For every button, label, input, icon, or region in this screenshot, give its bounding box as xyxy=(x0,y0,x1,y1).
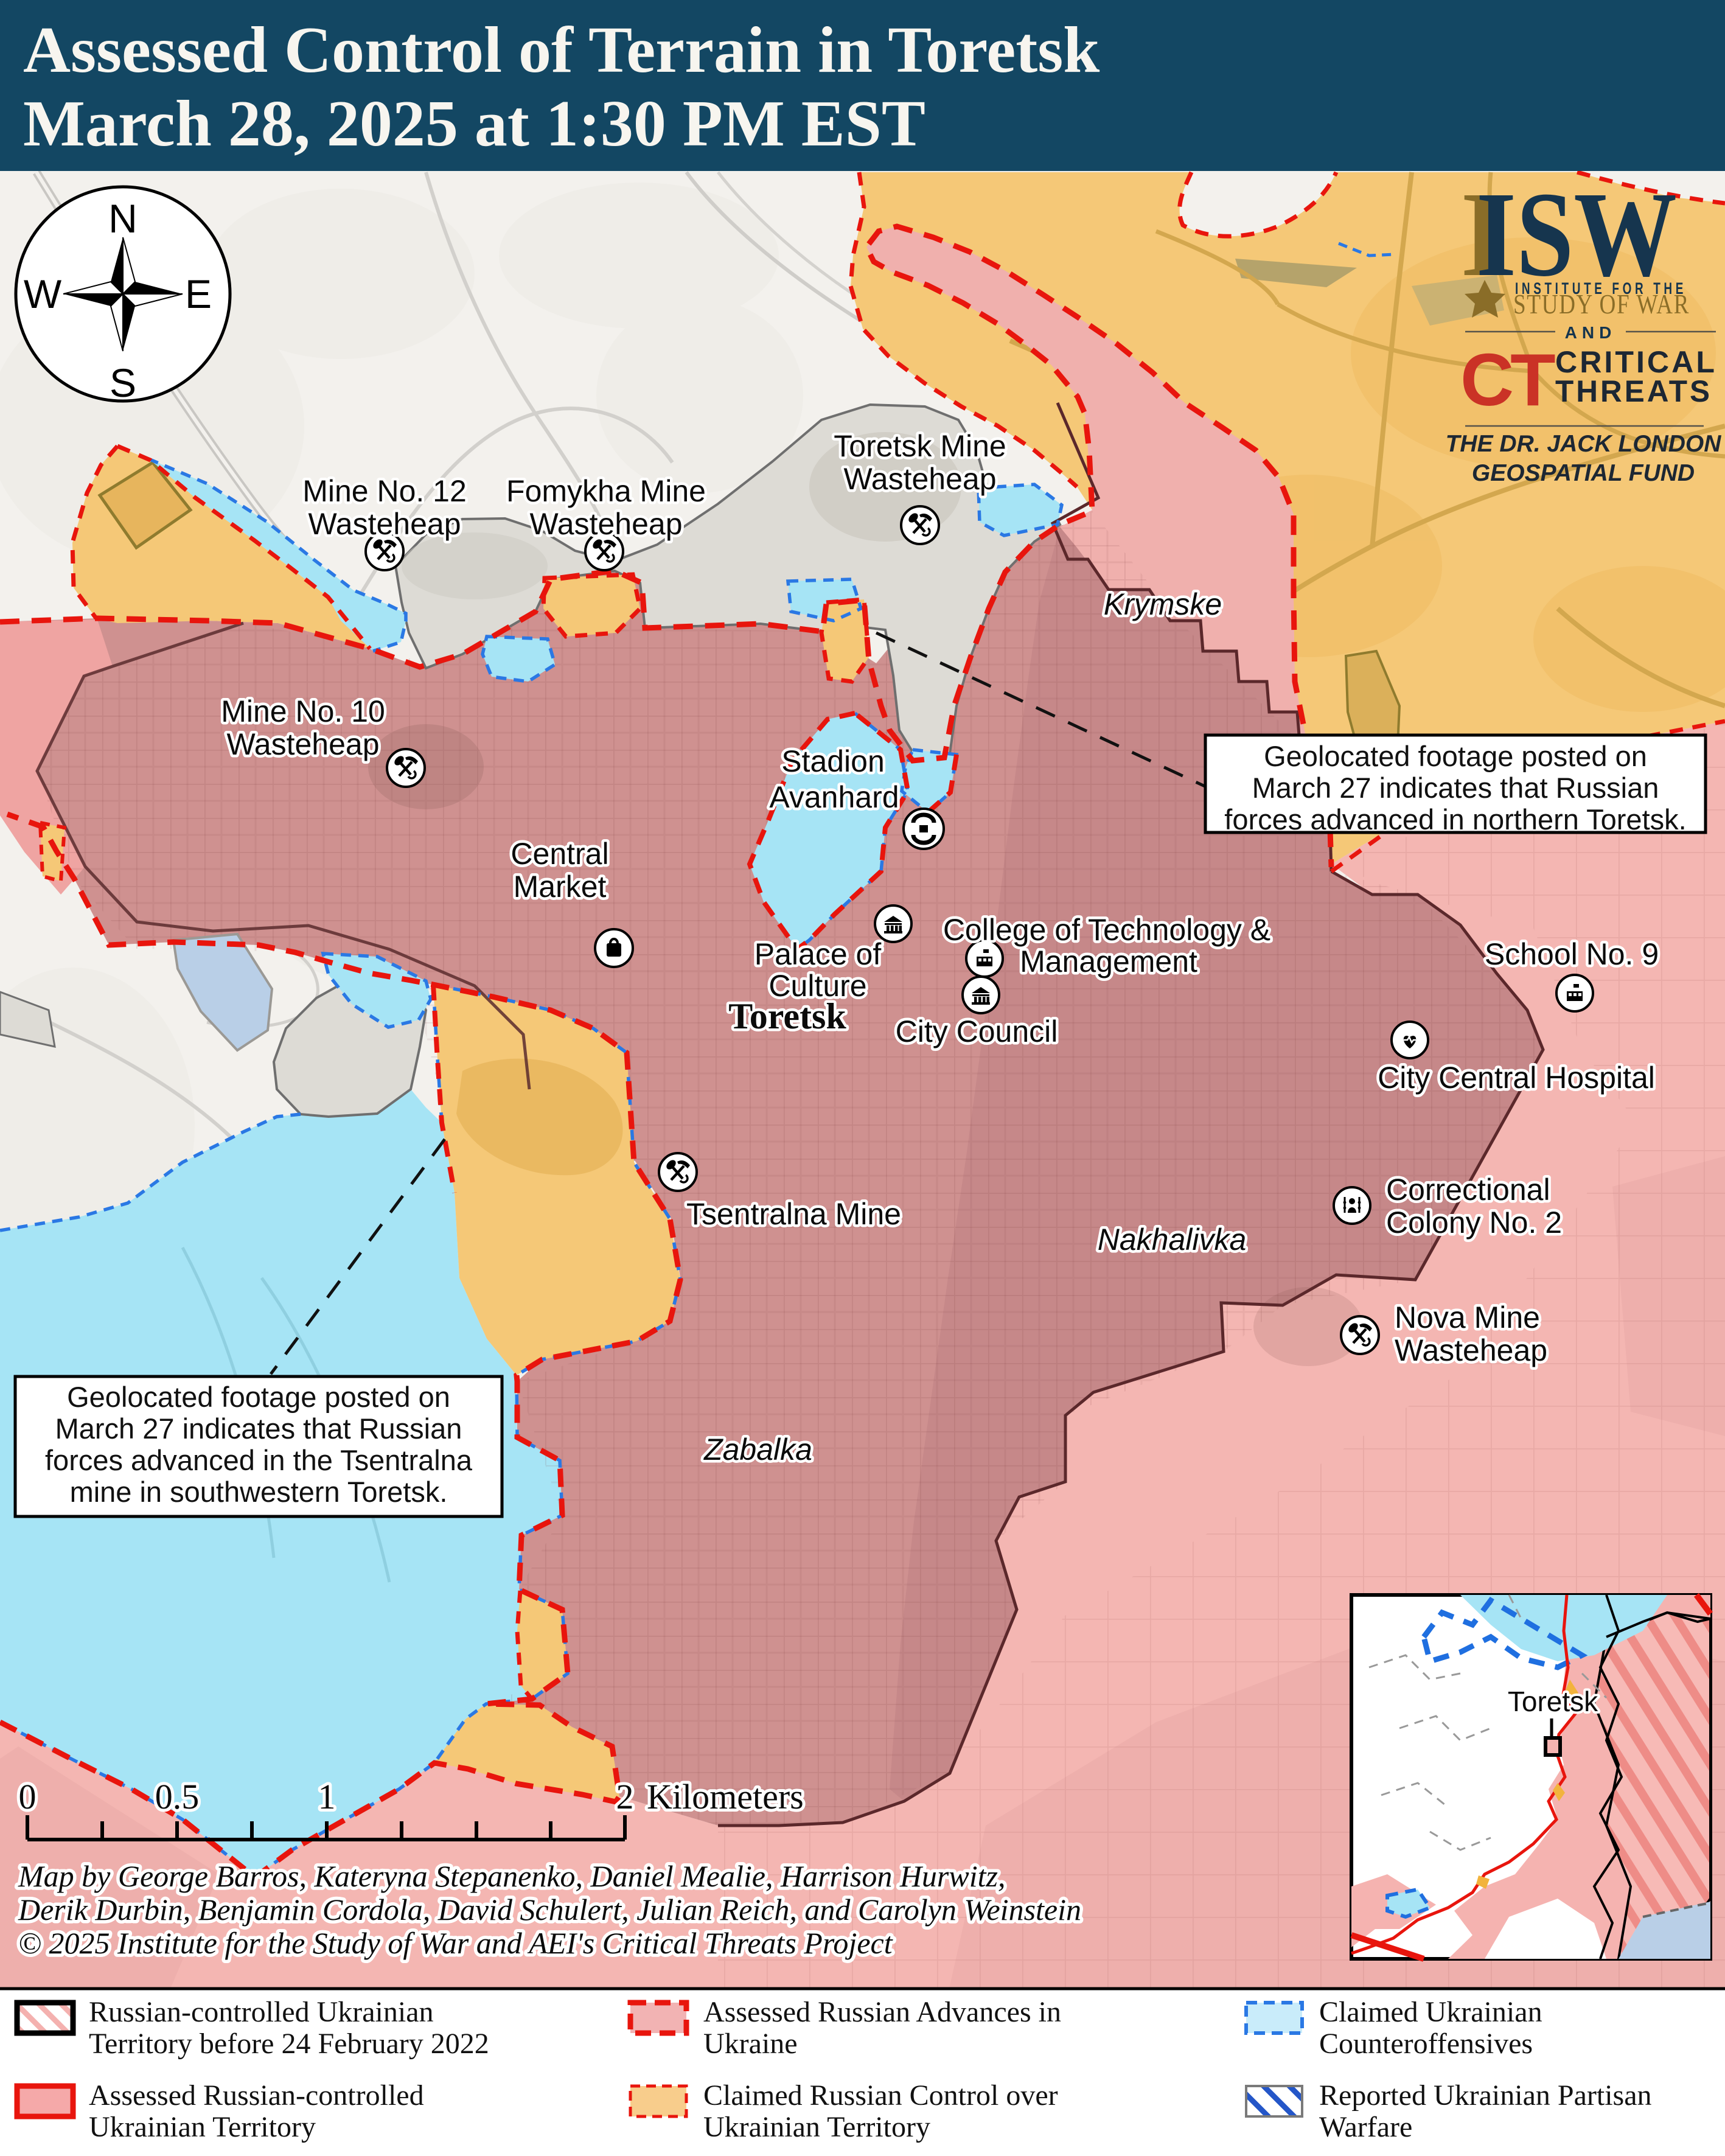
svg-text:© 2025 Institute for the Study: © 2025 Institute for the Study of War an… xyxy=(18,1926,893,1960)
svg-text:Avanhard: Avanhard xyxy=(769,780,899,814)
svg-text:Assessed Control of Terrain in: Assessed Control of Terrain in Toretsk xyxy=(23,14,1099,86)
svg-text:Counteroffensives: Counteroffensives xyxy=(1319,2028,1533,2060)
svg-text:THE DR. JACK LONDON: THE DR. JACK LONDON xyxy=(1446,431,1722,457)
svg-text:Zabalka: Zabalka xyxy=(703,1432,812,1467)
svg-text:Wasteheap: Wasteheap xyxy=(529,507,682,541)
svg-text:Management: Management xyxy=(1020,944,1197,979)
svg-text:GEOSPATIAL FUND: GEOSPATIAL FUND xyxy=(1472,460,1695,486)
svg-text:College of Technology &: College of Technology & xyxy=(943,913,1270,947)
svg-text:Geolocated footage posted on: Geolocated footage posted on xyxy=(1264,740,1647,772)
svg-text:2: 2 xyxy=(616,1777,634,1816)
svg-text:Geolocated footage posted on: Geolocated footage posted on xyxy=(67,1381,450,1413)
svg-text:Palace of: Palace of xyxy=(754,937,882,971)
svg-text:Krymske: Krymske xyxy=(1104,587,1222,621)
svg-text:Territory before 24 February 2: Territory before 24 February 2022 xyxy=(89,2028,489,2060)
svg-text:Fomykha Mine: Fomykha Mine xyxy=(506,474,706,508)
svg-text:Ukrainian Territory: Ukrainian Territory xyxy=(89,2111,316,2143)
svg-text:Toretsk: Toretsk xyxy=(1508,1686,1598,1717)
svg-text:Wasteheap: Wasteheap xyxy=(843,462,996,496)
svg-text:March 28, 2025 at 1:30 PM EST: March 28, 2025 at 1:30 PM EST xyxy=(23,88,925,160)
svg-text:S: S xyxy=(110,360,136,405)
svg-text:Mine No. 10: Mine No. 10 xyxy=(221,694,385,728)
svg-text:Kilometers: Kilometers xyxy=(647,1777,804,1816)
svg-text:Market: Market xyxy=(514,870,607,904)
svg-text:Ukraine: Ukraine xyxy=(703,2028,798,2060)
svg-text:Map by George Barros, Kateryna: Map by George Barros, Kateryna Stepanenk… xyxy=(18,1859,1006,1893)
svg-text:forces advanced in northern To: forces advanced in northern Toretsk. xyxy=(1224,803,1686,836)
svg-text:Russian-controlled Ukrainian: Russian-controlled Ukrainian xyxy=(89,1996,434,2028)
svg-text:AND: AND xyxy=(1565,323,1617,342)
svg-text:N: N xyxy=(108,196,138,241)
svg-text:mine in southwestern Toretsk.: mine in southwestern Toretsk. xyxy=(70,1476,448,1508)
svg-text:City Council: City Council xyxy=(896,1014,1058,1048)
svg-text:March 27 indicates that Russia: March 27 indicates that Russian xyxy=(55,1412,462,1445)
svg-text:W: W xyxy=(24,271,62,316)
svg-text:Warfare: Warfare xyxy=(1319,2111,1412,2143)
svg-text:Claimed Ukrainian: Claimed Ukrainian xyxy=(1319,1996,1542,2028)
svg-text:Wasteheap: Wasteheap xyxy=(308,507,461,541)
svg-text:0: 0 xyxy=(19,1777,37,1816)
svg-text:Assessed Russian Advances in: Assessed Russian Advances in xyxy=(703,1996,1061,2028)
svg-text:Ukrainian Territory: Ukrainian Territory xyxy=(703,2111,930,2143)
svg-text:1: 1 xyxy=(318,1777,336,1816)
svg-text:Derik Durbin, Benjamin Cordola: Derik Durbin, Benjamin Cordola, David Sc… xyxy=(18,1893,1081,1927)
svg-text:Wasteheap: Wasteheap xyxy=(1395,1333,1547,1367)
svg-text:Toretsk Mine: Toretsk Mine xyxy=(834,429,1006,463)
svg-text:Central: Central xyxy=(511,837,608,871)
svg-text:Colony No. 2: Colony No. 2 xyxy=(1386,1205,1562,1240)
svg-text:E: E xyxy=(185,271,212,316)
svg-text:Nova Mine: Nova Mine xyxy=(1395,1300,1540,1334)
svg-text:THREATS: THREATS xyxy=(1555,374,1712,408)
svg-text:Reported Ukrainian Partisan: Reported Ukrainian Partisan xyxy=(1319,2079,1652,2112)
svg-text:Assessed Russian-controlled: Assessed Russian-controlled xyxy=(89,2079,424,2112)
svg-text:Claimed Russian Control over: Claimed Russian Control over xyxy=(703,2079,1058,2112)
svg-text:Nakhalivka: Nakhalivka xyxy=(1098,1223,1247,1257)
svg-text:Correctional: Correctional xyxy=(1386,1173,1550,1207)
svg-text:Wasteheap: Wasteheap xyxy=(226,727,379,761)
svg-text:0.5: 0.5 xyxy=(155,1777,200,1816)
svg-text:Tsentralna Mine: Tsentralna Mine xyxy=(686,1197,901,1231)
svg-text:School No. 9: School No. 9 xyxy=(1485,937,1659,971)
svg-text:forces advanced in the Tsentra: forces advanced in the Tsentralna xyxy=(45,1444,473,1476)
svg-text:Toretsk: Toretsk xyxy=(728,996,846,1036)
svg-text:CT: CT xyxy=(1460,338,1555,421)
svg-text:Stadion: Stadion xyxy=(781,744,885,778)
svg-text:Mine No. 12: Mine No. 12 xyxy=(302,474,467,508)
svg-text:STUDY OF WAR: STUDY OF WAR xyxy=(1513,288,1690,319)
svg-text:March 27 indicates that Russia: March 27 indicates that Russian xyxy=(1252,772,1659,804)
svg-text:City Central Hospital: City Central Hospital xyxy=(1378,1061,1655,1095)
